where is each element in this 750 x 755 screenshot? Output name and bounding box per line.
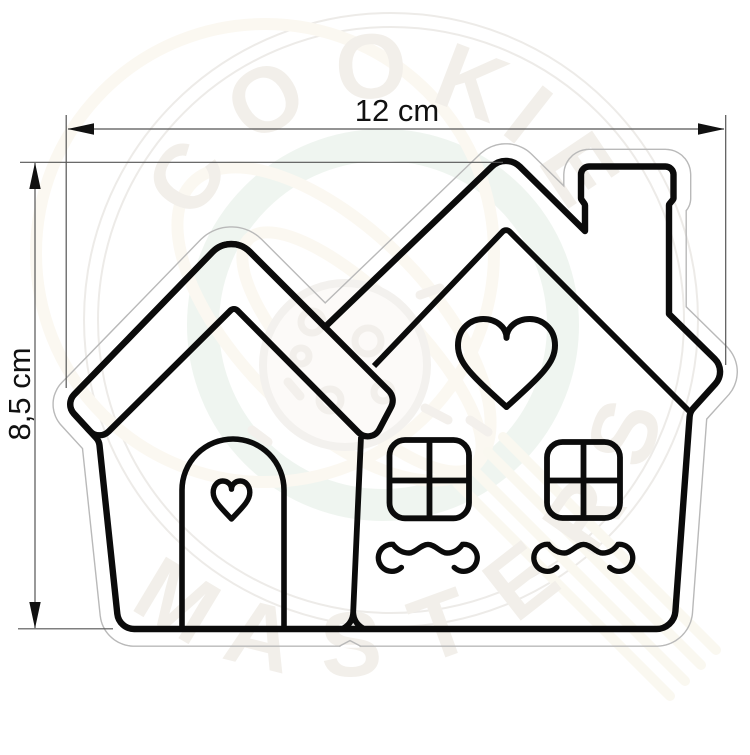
svg-text:12 cm: 12 cm xyxy=(355,93,439,128)
svg-text:8,5 cm: 8,5 cm xyxy=(2,347,37,440)
